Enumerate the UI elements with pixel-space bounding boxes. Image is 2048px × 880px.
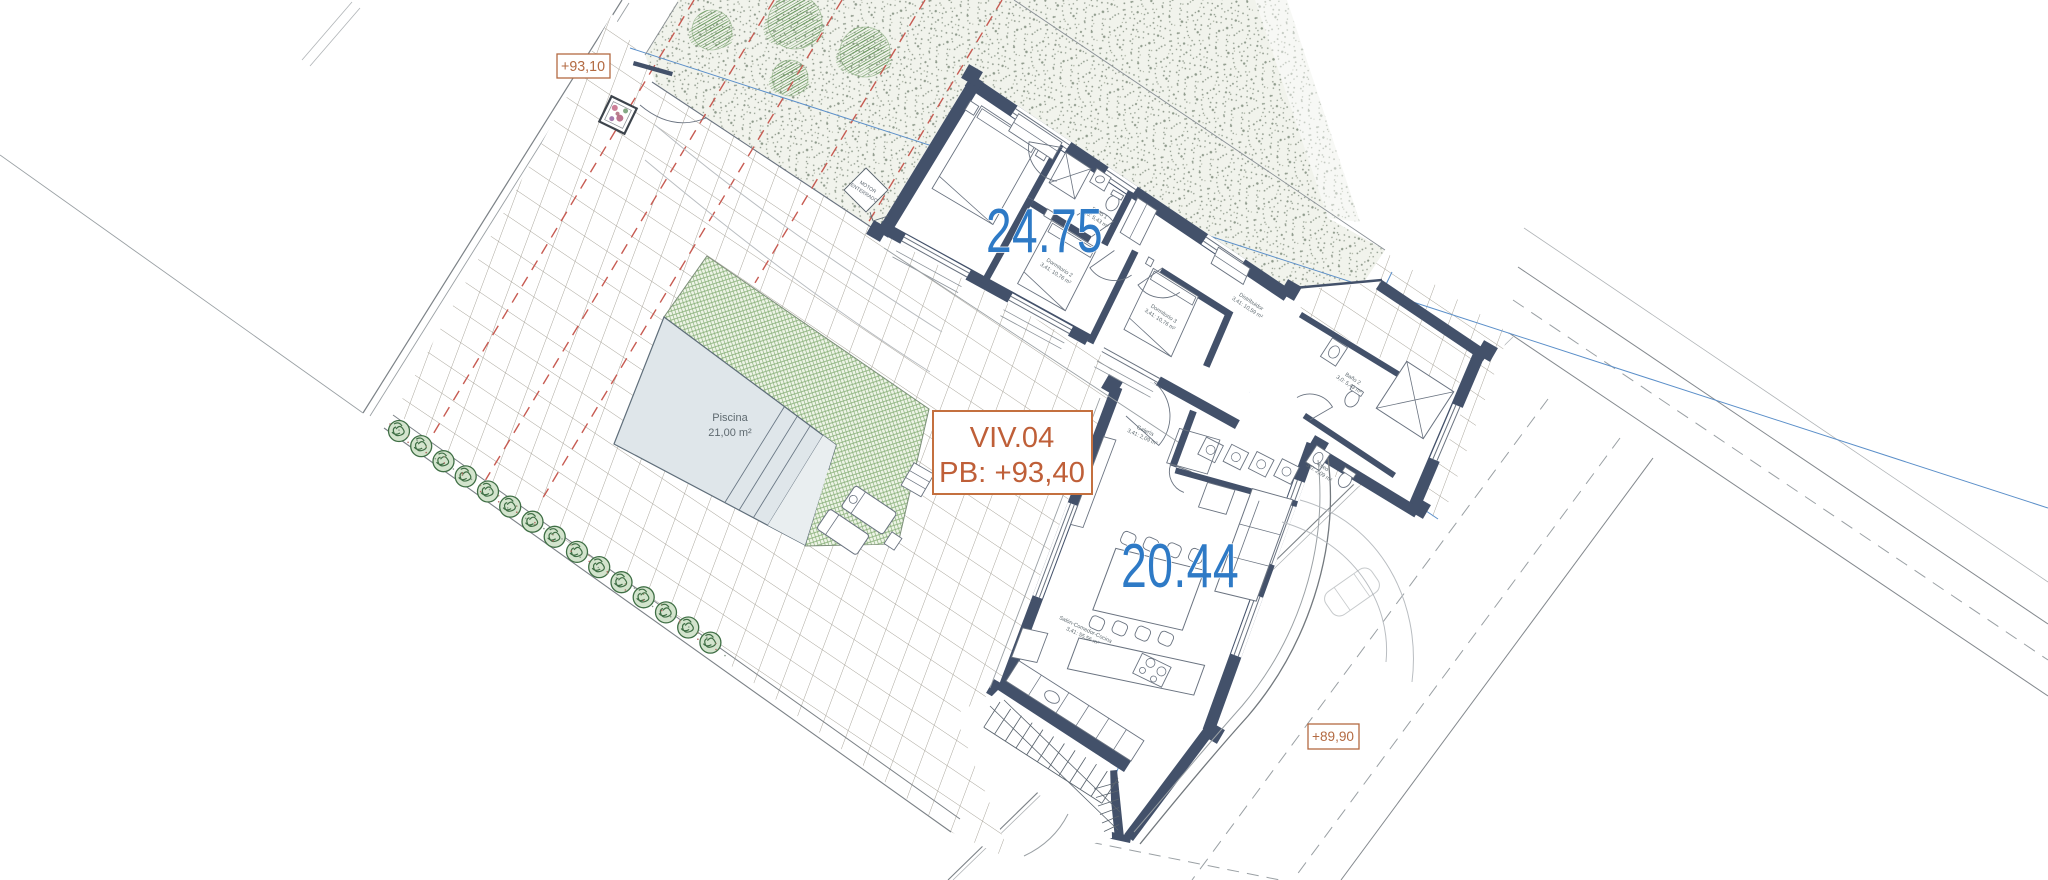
svg-text:+93,10: +93,10: [561, 58, 605, 75]
svg-text:24.75: 24.75: [986, 197, 1103, 266]
svg-text:20.44: 20.44: [1121, 532, 1239, 601]
svg-text:+89,90: +89,90: [1312, 728, 1354, 744]
svg-text:PB: +93,40: PB: +93,40: [939, 457, 1085, 489]
svg-text:VIV.04: VIV.04: [970, 422, 1054, 454]
svg-text:21,00 m²: 21,00 m²: [708, 427, 752, 439]
svg-text:Piscina: Piscina: [712, 412, 748, 424]
